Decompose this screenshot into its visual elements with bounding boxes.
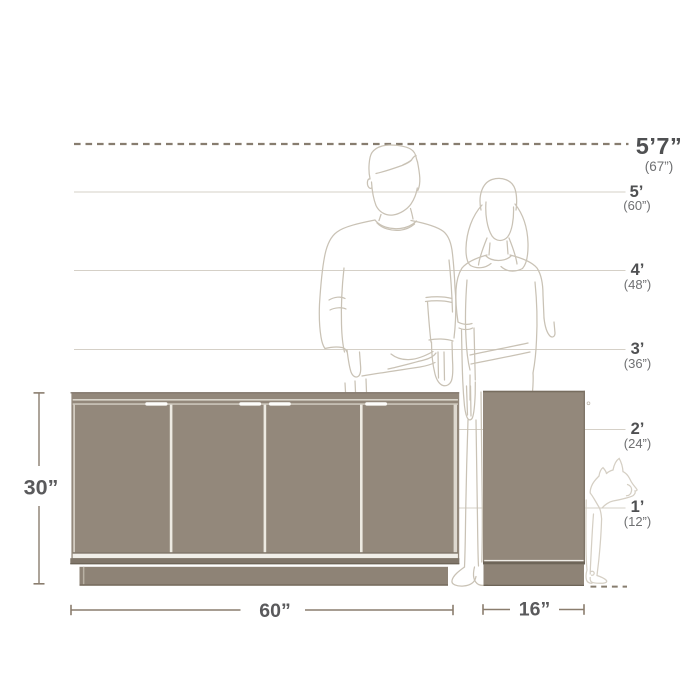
svg-text:30”: 30” bbox=[24, 476, 59, 500]
svg-text:(60”): (60”) bbox=[623, 198, 650, 213]
svg-text:(24”): (24”) bbox=[624, 436, 651, 451]
svg-text:(48”): (48”) bbox=[624, 277, 651, 292]
svg-text:16”: 16” bbox=[519, 599, 550, 621]
svg-text:60”: 60” bbox=[259, 600, 290, 622]
svg-text:(12”): (12”) bbox=[624, 514, 651, 529]
svg-text:5’7”: 5’7” bbox=[636, 133, 682, 159]
svg-text:(67”): (67”) bbox=[645, 159, 674, 174]
svg-text:(36”): (36”) bbox=[624, 356, 651, 371]
